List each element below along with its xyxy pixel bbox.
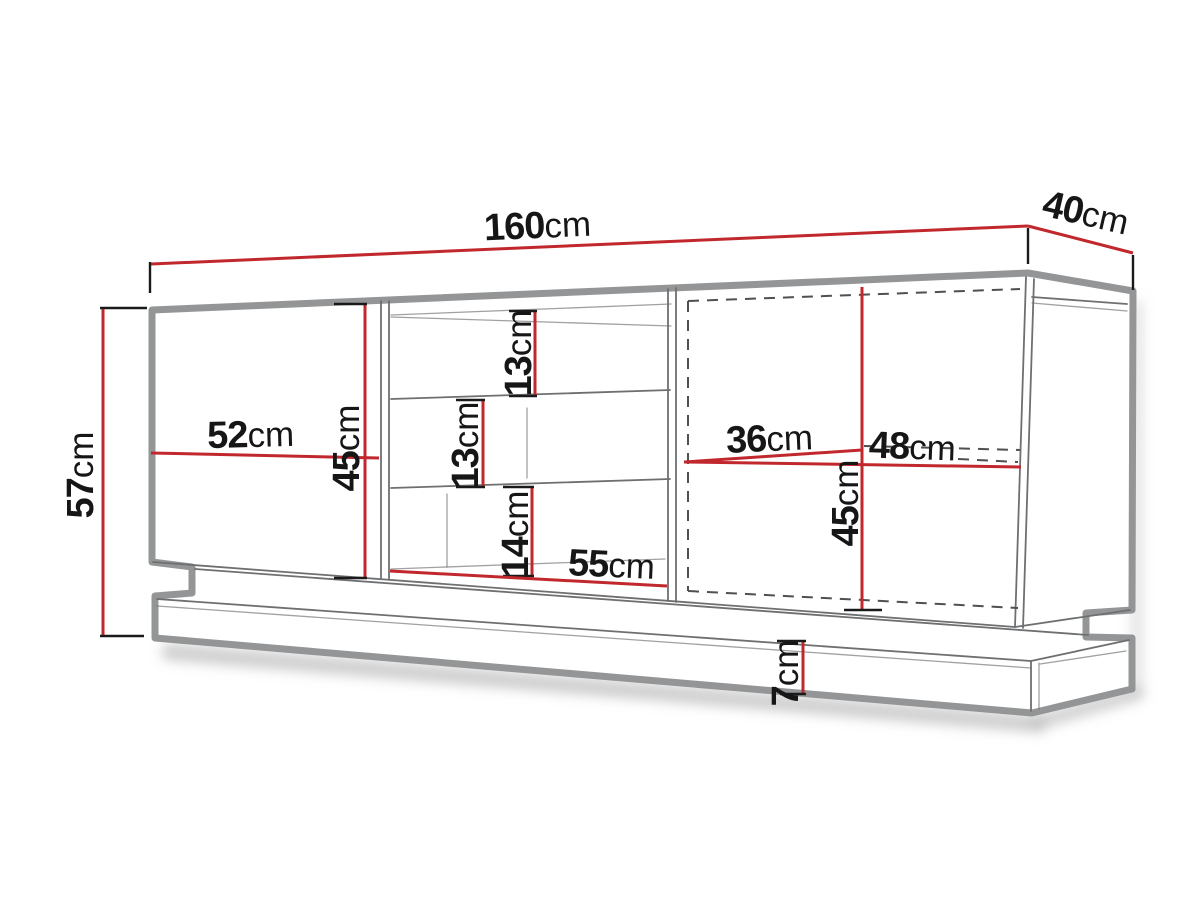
dimension-plinth-height-label: 7cm	[765, 640, 807, 707]
dimension-left-door-width-label: 52cm	[207, 413, 295, 457]
dimension-right-section-width-label: 48cm	[868, 425, 956, 470]
diagram-canvas: 160cm 40cm 57cm 52cm 45cm 13cm 13cm	[0, 0, 1200, 899]
dimension-total-height-label: 57cm	[60, 432, 102, 519]
dimension-total-width-label: 160cm	[483, 203, 592, 250]
dimension-top-shelf-label: 13cm	[498, 310, 540, 397]
dimension-bottom-shelf-label: 14cm	[495, 491, 537, 578]
dimension-open-section-width-label: 55cm	[567, 542, 656, 588]
dimension-bottom-shelf: 14cm	[495, 486, 537, 577]
dimension-left-door-height-label: 45cm	[326, 405, 368, 492]
dimension-plinth-height: 7cm	[765, 640, 807, 707]
dimension-right-door-width-label: 36cm	[725, 416, 814, 462]
dimension-middle-shelf-label: 13cm	[445, 402, 487, 489]
dimension-middle-shelf: 13cm	[445, 399, 487, 488]
cabinet-outline	[152, 273, 1133, 713]
cabinet	[152, 273, 1133, 713]
dimension-right-door-height-label: 45cm	[825, 460, 867, 547]
dimension-top-shelf: 13cm	[498, 310, 540, 397]
furniture-dimension-diagram: 160cm 40cm 57cm 52cm 45cm 13cm 13cm	[0, 0, 1200, 899]
